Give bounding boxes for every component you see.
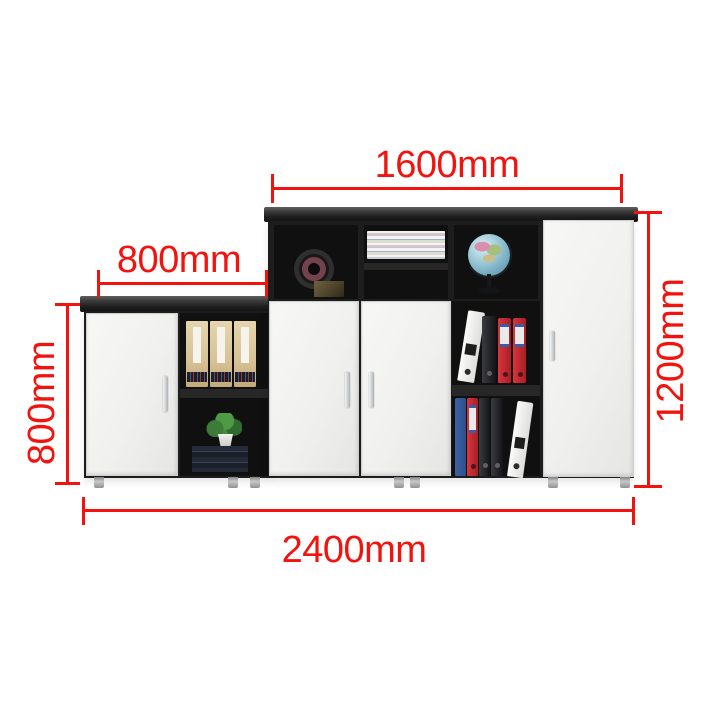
ring-binder-blue: [455, 398, 466, 476]
magazine-stack: [367, 231, 445, 259]
ring-binder-white: [457, 310, 485, 383]
door-handle: [369, 372, 374, 408]
door-handle: [345, 372, 350, 408]
dimension-label: 800mm: [117, 241, 241, 279]
cubby-globe: [454, 225, 538, 299]
left-cabinet-top-panel: [80, 296, 272, 312]
left-cabinet-open-shelves: [180, 313, 268, 476]
dimension-tick: [634, 485, 662, 488]
globe-stand: [487, 274, 491, 288]
ring-binder-white: [507, 401, 533, 478]
cabinet-leg: [228, 477, 238, 488]
dimension-tick: [265, 270, 268, 297]
tall-cabinet-right-door: [543, 220, 634, 477]
left-cabinet-door: [86, 313, 178, 476]
shelf-divider: [452, 385, 540, 396]
plant-foliage: [206, 413, 242, 437]
cubby-tape: [274, 225, 358, 299]
middle-door-left: [269, 301, 359, 476]
tape-roll-base: [314, 281, 344, 297]
dimension-label: 2400mm: [282, 531, 427, 569]
dimension-line: [66, 305, 69, 484]
dimension-tick: [97, 270, 100, 297]
cabinet-leg: [548, 477, 558, 488]
file-box: [186, 321, 208, 387]
globe-base: [478, 287, 500, 294]
dimension-tick: [271, 174, 274, 203]
dimension-tick: [634, 211, 662, 214]
dimension-tick: [82, 497, 85, 525]
dimension-line: [83, 509, 634, 512]
binder-shelves: [452, 301, 540, 476]
dimension-label: 1600mm: [375, 146, 520, 184]
dimension-tick: [632, 497, 635, 525]
cabinet-leg: [94, 477, 104, 488]
ring-binder-black: [482, 316, 496, 383]
dimension-tick: [620, 174, 623, 203]
dimension-line: [272, 187, 622, 190]
ring-binder-black: [479, 398, 490, 476]
dimension-label: 1200mm: [652, 279, 690, 424]
ring-binder-red: [498, 318, 511, 383]
door-handle: [550, 331, 555, 361]
door-handle: [163, 376, 168, 412]
dimension-tick: [55, 303, 80, 306]
ring-binder-red: [467, 398, 478, 476]
shelf-divider: [180, 389, 268, 398]
cabinet-leg: [394, 477, 404, 488]
cubby-magazines: [364, 225, 448, 299]
cabinet-leg: [250, 477, 260, 488]
cabinet-leg: [620, 477, 630, 488]
file-box: [234, 321, 256, 387]
dimension-tick: [55, 482, 80, 485]
shelf-divider: [364, 263, 448, 270]
dimension-label: 800mm: [23, 341, 61, 465]
middle-door-right: [361, 301, 451, 476]
book-stack: [192, 446, 248, 472]
dimension-line: [98, 282, 267, 285]
left-cabinet: [84, 311, 270, 478]
globe: [468, 234, 510, 276]
file-box: [210, 321, 232, 387]
product-dimension-image: 1600mm 800mm 800mm 1200mm 2400mm: [0, 0, 720, 720]
ring-binder-black: [491, 398, 503, 476]
cabinet-leg: [410, 477, 420, 488]
ring-binder-red: [513, 318, 526, 383]
